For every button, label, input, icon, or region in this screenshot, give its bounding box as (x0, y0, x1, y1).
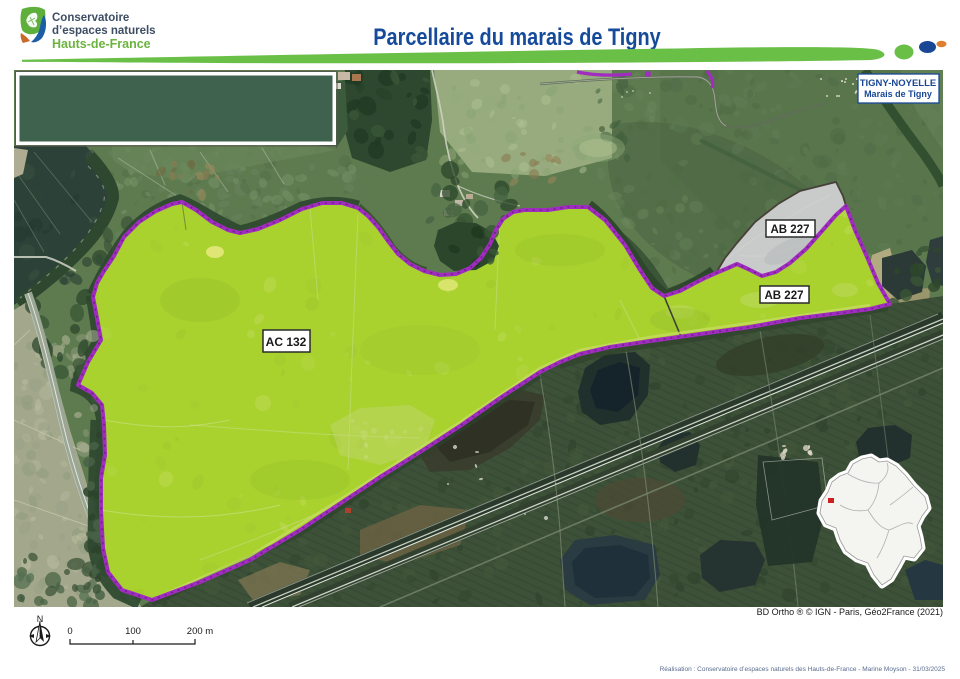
svg-text:AB 227: AB 227 (765, 290, 804, 302)
svg-text:TIGNY-NOYELLE: TIGNY-NOYELLE (860, 78, 937, 89)
svg-text:200 m: 200 m (187, 626, 213, 637)
svg-text:0: 0 (67, 626, 72, 637)
svg-text:AC 132: AC 132 (266, 335, 307, 349)
svg-text:Marais de Tigny: Marais de Tigny (864, 89, 932, 99)
svg-text:AB 227: AB 227 (771, 224, 810, 236)
svg-text:100: 100 (125, 626, 141, 637)
